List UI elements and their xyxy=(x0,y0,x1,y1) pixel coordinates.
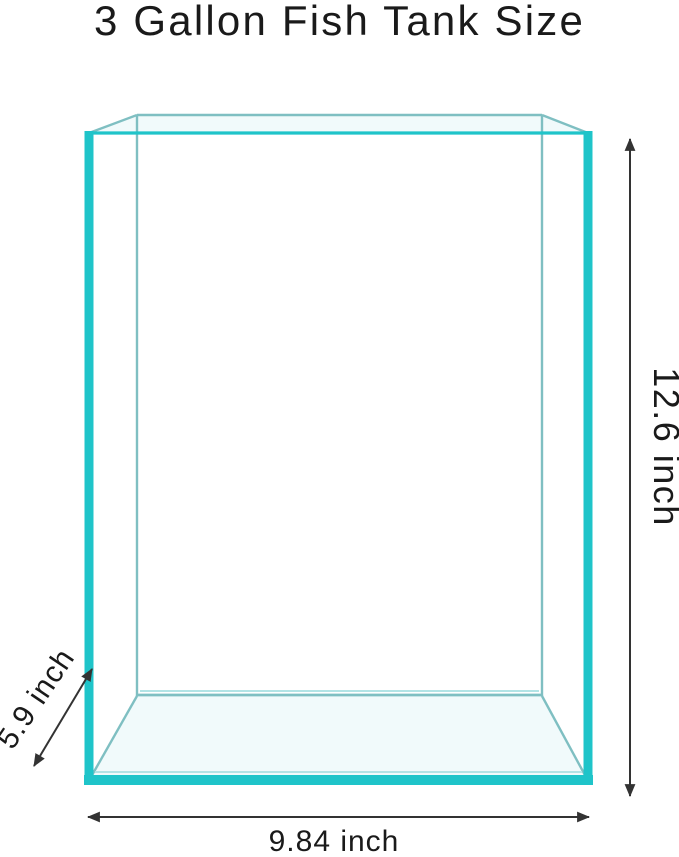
fish-tank-size-diagram: 3 Gallon Fish Tank Size xyxy=(0,0,679,857)
height-dimension-label: 12.6 inch xyxy=(646,367,679,527)
depth-dimension-label: 5.9 inch xyxy=(0,643,81,755)
tank-diagram: 12.6 inch 5.9 inch 9.84 inch xyxy=(0,0,679,857)
tank-top-rim-face xyxy=(89,116,588,133)
tank-floor-face xyxy=(89,696,588,778)
width-dimension-label: 9.84 inch xyxy=(269,825,400,857)
tank-front-edges xyxy=(84,131,593,784)
tank-back-edges xyxy=(89,115,588,777)
